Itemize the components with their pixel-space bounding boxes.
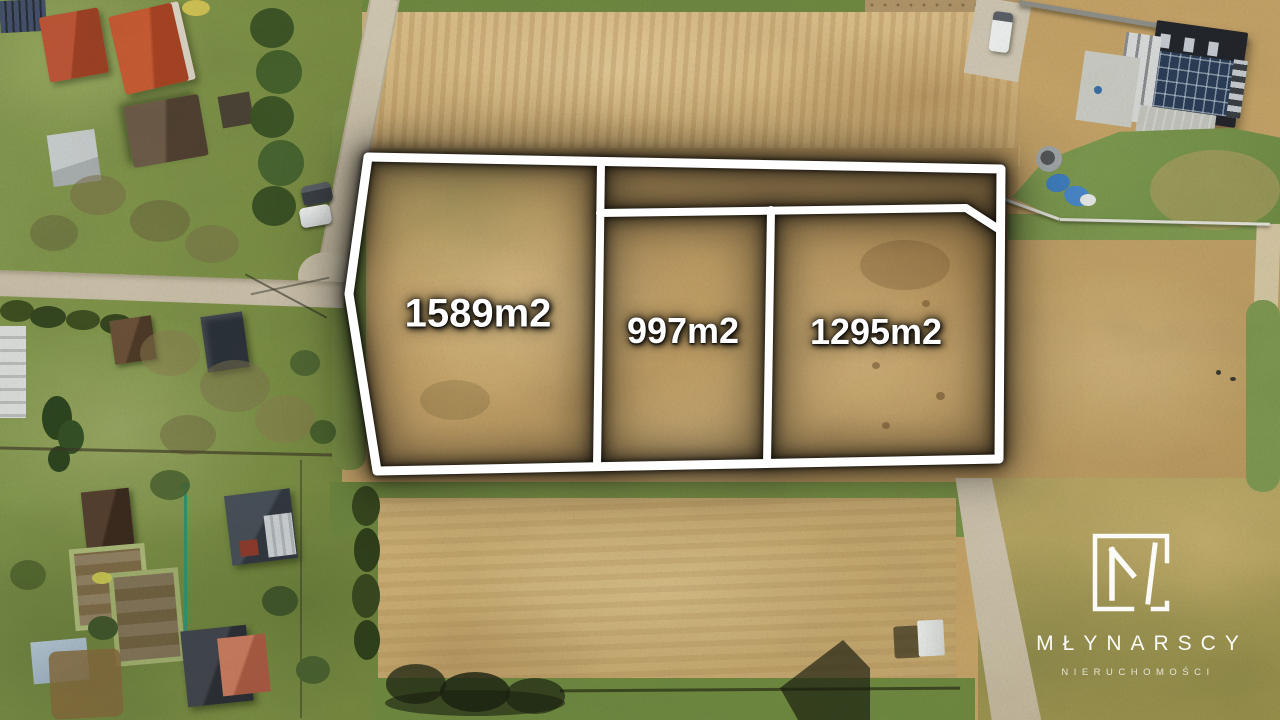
- bare-tree: [185, 225, 239, 263]
- brand-subtitle: NIERUCHOMOŚCI: [1020, 667, 1251, 678]
- tiny-object: [1230, 377, 1236, 381]
- small-tree: [10, 560, 46, 590]
- small-tree: [290, 350, 320, 376]
- field-smudge: [860, 240, 950, 290]
- dark-garden-shed: [217, 91, 254, 128]
- house-brown-roof: [123, 94, 209, 168]
- yellow-tree: [182, 0, 210, 16]
- yellow-flowers: [92, 572, 112, 584]
- m-monogram-icon: [1020, 520, 1246, 620]
- hedge: [30, 306, 66, 328]
- hedge: [66, 310, 100, 330]
- field-east: [1008, 214, 1280, 484]
- grass-east-edge: [1246, 300, 1280, 492]
- hedge: [258, 140, 304, 186]
- bare-tree: [130, 200, 190, 242]
- field-speck: [882, 422, 890, 429]
- field-speck: [936, 392, 945, 400]
- white-annex: [264, 512, 297, 557]
- tree-shadow: [385, 690, 565, 716]
- white-building: [0, 326, 26, 418]
- hedge: [252, 186, 296, 226]
- bare-tree: [255, 395, 315, 443]
- hedge: [354, 528, 380, 572]
- brand-name: MŁYNARSCY: [1020, 632, 1255, 656]
- skylight: [1183, 37, 1195, 52]
- small-tree: [150, 470, 190, 500]
- hedge: [250, 8, 294, 48]
- hedge: [352, 486, 380, 526]
- house-salmon-bottom: [217, 634, 271, 697]
- bare-tree: [70, 175, 126, 215]
- small-tree: [310, 420, 336, 444]
- red-roof-patch: [239, 539, 259, 557]
- small-tree: [296, 656, 330, 684]
- small-tree: [88, 616, 118, 640]
- hedge: [0, 300, 34, 322]
- field-smudge: [420, 380, 490, 420]
- tiny-object: [1216, 370, 1221, 375]
- blue-dot: [1094, 86, 1102, 94]
- aerial-photo: 1589m2 997m2 1295m2 MŁYNARSCY NIERUCHOMO…: [0, 0, 1280, 720]
- house-red-roof-1: [39, 7, 110, 82]
- skylight: [1207, 41, 1219, 56]
- field-speck: [922, 300, 930, 307]
- plot-area-label-2: 997m2: [627, 310, 739, 352]
- brand-logo: MŁYNARSCY NIERUCHOMOŚCI: [1020, 520, 1246, 690]
- field-speck: [872, 362, 880, 369]
- small-tree: [262, 586, 298, 616]
- dirt-patch: [1150, 150, 1280, 230]
- plot-area-label-1: 1589m2: [405, 292, 552, 337]
- brown-garden-patch: [48, 648, 123, 720]
- bare-tree: [160, 415, 216, 455]
- hedge: [354, 620, 380, 660]
- hedge: [352, 574, 380, 618]
- hot-tub: [1036, 146, 1062, 172]
- concrete-pad: [1075, 50, 1140, 127]
- straw-field-top: [362, 12, 1020, 167]
- bare-tree: [140, 330, 200, 376]
- white-shed: [917, 619, 945, 656]
- white-bits: [1080, 194, 1096, 206]
- bare-tree: [30, 215, 78, 251]
- hedge: [256, 50, 302, 94]
- plot-area-label-3: 1295m2: [810, 311, 942, 353]
- teal-mast: [184, 486, 187, 636]
- hedge: [250, 96, 294, 138]
